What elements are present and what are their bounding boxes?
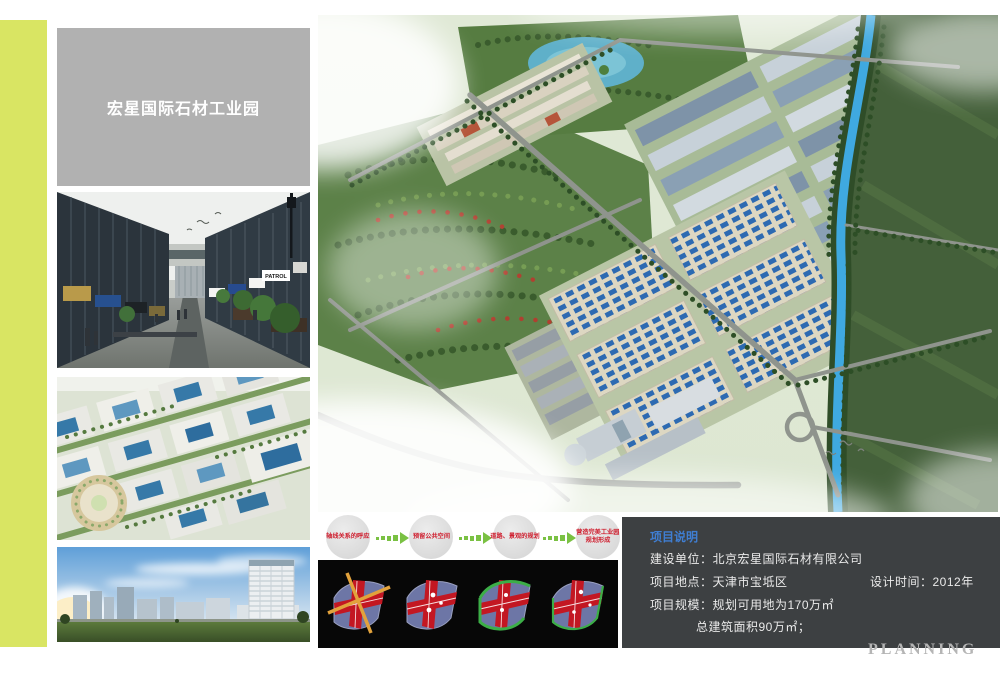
concept-diagram-panel	[318, 560, 618, 648]
project-client: 建设单位：北京宏星国际石材有限公司	[650, 550, 863, 567]
project-scale-1: 项目规模：规划可用地为170万㎡	[650, 596, 834, 613]
flow-step-1: 轴线关系的呼应	[326, 515, 370, 559]
concept-diagram-green-edge	[473, 571, 537, 637]
photo-campus-aerial	[57, 377, 310, 540]
master-plan-illustration	[318, 15, 998, 512]
flow-arrow-icon	[543, 532, 576, 544]
planning-watermark: PLANNING	[868, 641, 977, 659]
flow-step-2-label: 预留公共空间	[412, 533, 449, 541]
circular-plaza	[71, 475, 127, 531]
project-info-box: 项目说明 建设单位：北京宏星国际石材有限公司 项目地点：天津市宝坻区 设计时间：…	[622, 517, 1000, 648]
street-sign-label: PATROL	[265, 274, 287, 280]
concept-diagram-final	[546, 571, 610, 637]
master-plan-rendering	[318, 15, 998, 512]
project-scale-2: 总建筑面积90万㎡；	[696, 618, 810, 635]
photo-street-view: PATROL	[57, 192, 310, 368]
project-design-time: 设计时间：2012年	[870, 573, 974, 590]
title-panel: 宏星国际石材工业园	[57, 28, 310, 186]
campus-aerial-illustration	[57, 377, 310, 540]
flow-step-4: 营造完美工业园 规划形成	[576, 515, 620, 559]
page-title: 宏星国际石材工业园	[107, 95, 260, 119]
flow-arrow-icon	[376, 532, 409, 544]
presentation-board: 宏星国际石材工业园	[0, 0, 1000, 678]
street-view-illustration: PATROL	[57, 192, 310, 368]
project-location: 项目地点：天津市宝坻区	[650, 573, 788, 590]
flow-step-2: 预留公共空间	[409, 515, 453, 559]
flow-step-1-label: 轴线关系的呼应	[326, 533, 369, 541]
concept-diagram-axes	[327, 571, 391, 637]
project-info-title: 项目说明	[650, 528, 698, 545]
flow-step-3: 道路、景观的规划	[493, 515, 537, 559]
photo-skyline	[57, 547, 310, 642]
flow-arrow-icon	[459, 532, 492, 544]
accent-stripe	[0, 20, 47, 647]
flow-step-4-label: 营造完美工业园	[576, 529, 619, 537]
flow-step-3-label: 道路、景观的规划	[490, 533, 539, 541]
concept-diagram-nodes	[400, 571, 464, 637]
skyline-illustration	[57, 547, 310, 642]
